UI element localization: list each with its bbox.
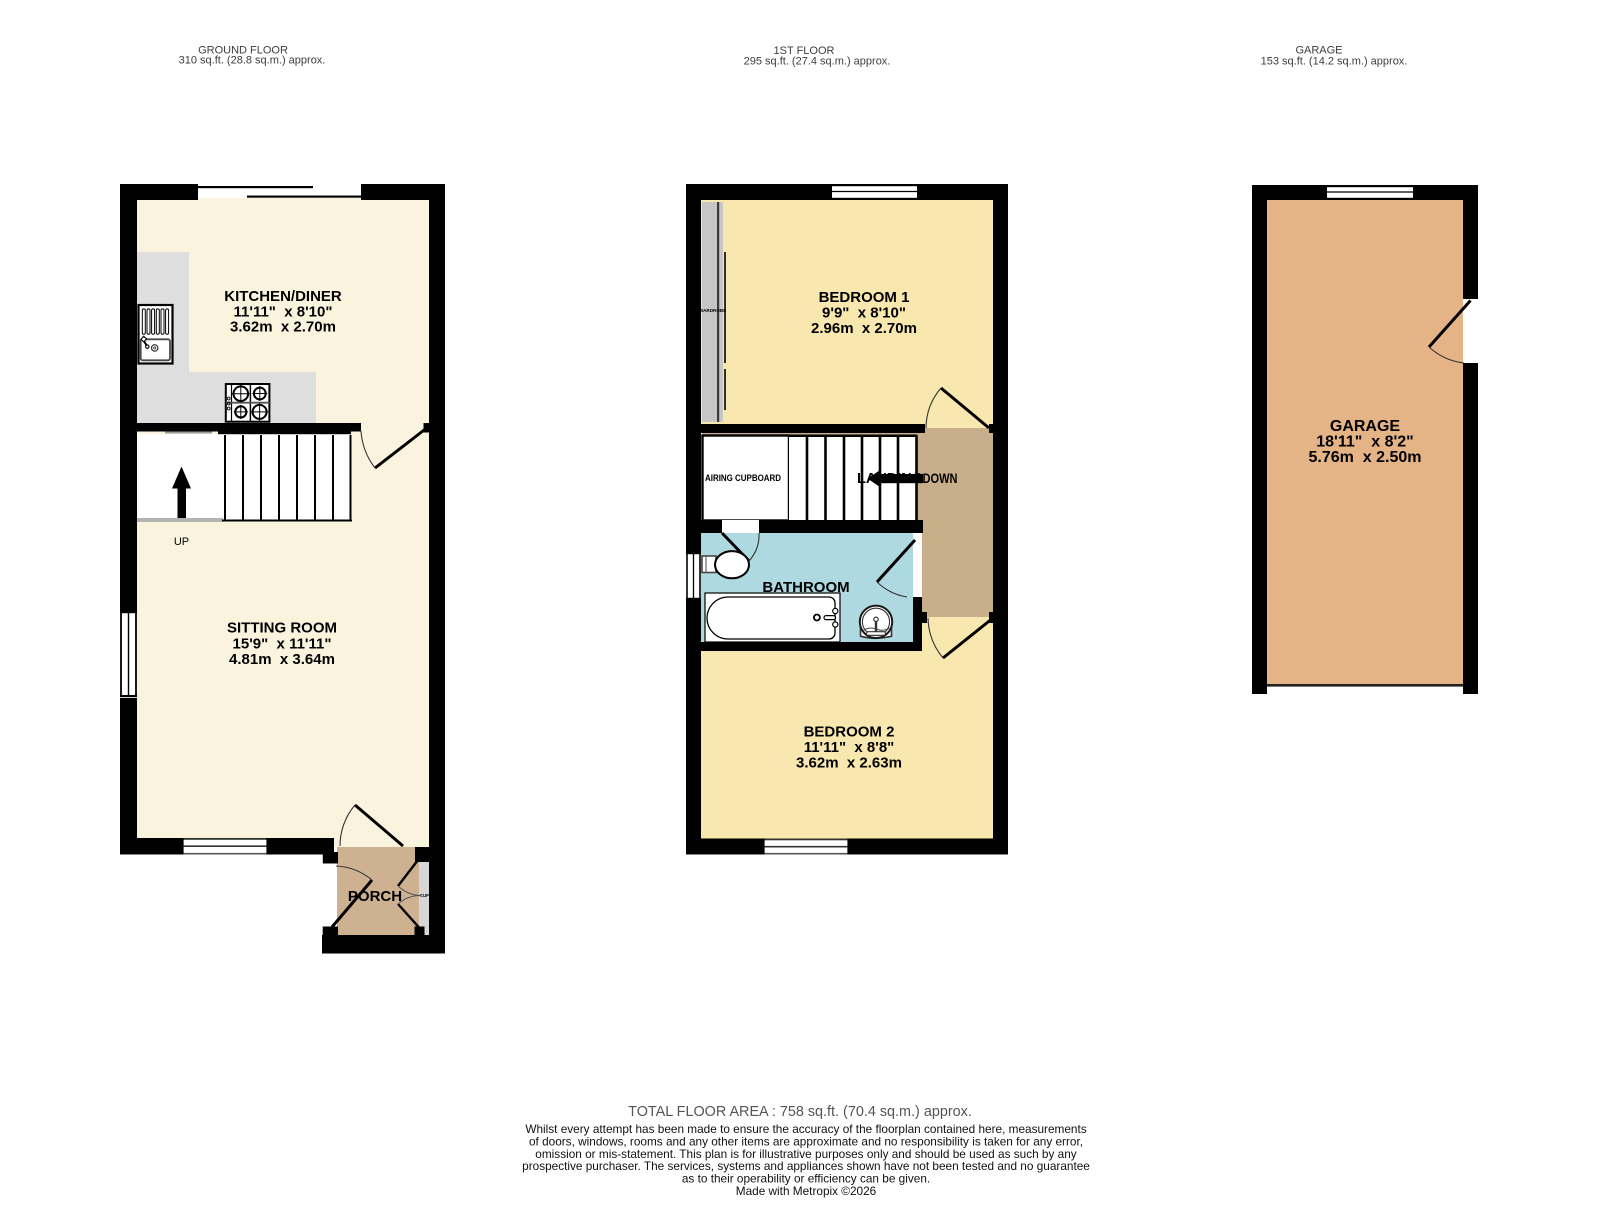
- svg-text:BEDROOM 2: BEDROOM 2: [804, 724, 895, 741]
- svg-text:18'11" x 8'2": 18'11" x 8'2": [1316, 434, 1414, 451]
- svg-text:310 sq.ft. (28.8 sq.m.) approx: 310 sq.ft. (28.8 sq.m.) approx.: [179, 55, 326, 67]
- svg-text:GARAGE: GARAGE: [1330, 418, 1401, 435]
- svg-text:11'11" x 8'8": 11'11" x 8'8": [804, 739, 895, 756]
- svg-text:9'9" x 8'10": 9'9" x 8'10": [822, 305, 906, 322]
- svg-text:153 sq.ft. (14.2 sq.m.) approx: 153 sq.ft. (14.2 sq.m.) approx.: [1261, 56, 1408, 68]
- svg-text:2.96m x 2.70m: 2.96m x 2.70m: [811, 320, 917, 337]
- svg-text:DOWN: DOWN: [923, 471, 958, 486]
- svg-text:AIRING CUPBOARD: AIRING CUPBOARD: [705, 473, 781, 484]
- svg-text:3.62m x 2.63m: 3.62m x 2.63m: [796, 755, 902, 772]
- svg-text:TOTAL FLOOR AREA : 758 sq.ft.: TOTAL FLOOR AREA : 758 sq.ft. (70.4 sq.m…: [628, 1104, 972, 1120]
- svg-text:15'9" x 11'11": 15'9" x 11'11": [233, 636, 332, 653]
- svg-text:3.62m x 2.70m: 3.62m x 2.70m: [230, 319, 336, 336]
- svg-text:KITCHEN/DINER: KITCHEN/DINER: [224, 288, 342, 305]
- svg-text:PORCH: PORCH: [348, 888, 402, 905]
- svg-text:UP: UP: [174, 536, 189, 548]
- svg-text:CUPB: CUPB: [420, 893, 432, 898]
- svg-text:WARDROBE: WARDROBE: [699, 308, 726, 313]
- svg-text:SITTING ROOM: SITTING ROOM: [227, 620, 337, 637]
- svg-text:5.76m x 2.50m: 5.76m x 2.50m: [1309, 449, 1422, 466]
- svg-text:BEDROOM 1: BEDROOM 1: [819, 289, 910, 306]
- svg-text:Made with Metropix ©2026: Made with Metropix ©2026: [736, 1184, 877, 1198]
- svg-text:4.81m x 3.64m: 4.81m x 3.64m: [229, 651, 335, 668]
- svg-text:295 sq.ft. (27.4 sq.m.) approx: 295 sq.ft. (27.4 sq.m.) approx.: [744, 56, 891, 68]
